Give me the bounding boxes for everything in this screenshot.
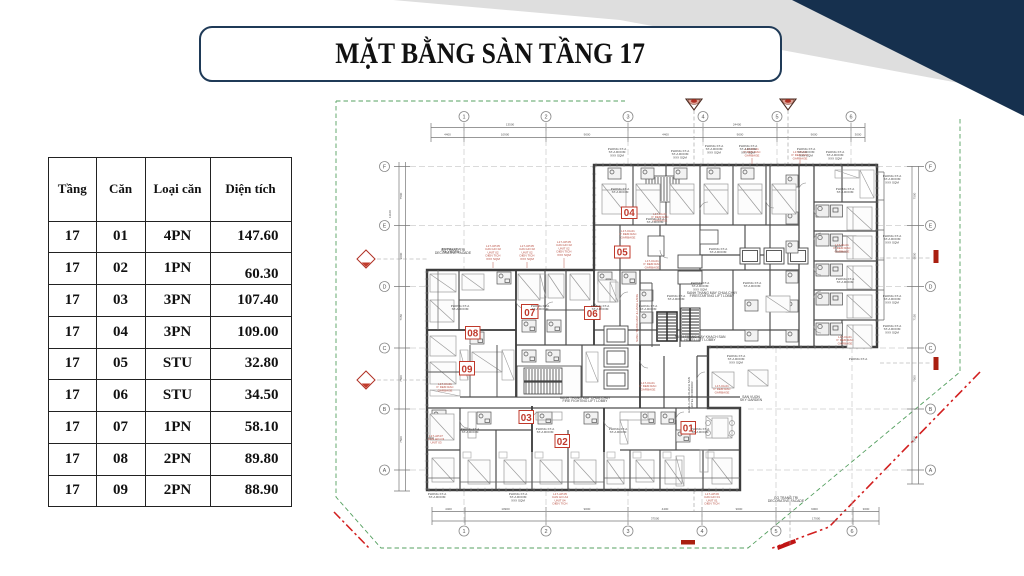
svg-text:09: 09 [462, 365, 473, 376]
svg-text:9000: 9000 [811, 507, 818, 511]
svg-text:ST-A ROOM: ST-A ROOM [647, 220, 664, 224]
svg-text:5: 5 [774, 529, 777, 535]
svg-text:XXX SQM: XXX SQM [557, 253, 571, 257]
svg-text:DECORATIVE FACADE: DECORATIVE FACADE [768, 499, 805, 503]
svg-text:7500: 7500 [399, 192, 403, 199]
svg-text:ST-A ROOM: ST-A ROOM [668, 297, 685, 301]
svg-text:ST-A ROOM: ST-A ROOM [537, 430, 554, 434]
svg-text:13500: 13500 [506, 123, 515, 127]
svg-text:7500: 7500 [913, 192, 917, 199]
svg-text:3: 3 [626, 115, 629, 121]
svg-text:3000: 3000 [863, 507, 870, 511]
svg-text:17900: 17900 [812, 517, 821, 521]
svg-text:ST-A ROOM: ST-A ROOM [837, 280, 854, 284]
svg-text:A: A [929, 468, 933, 474]
svg-text:3: 3 [626, 529, 629, 535]
svg-text:1: 1 [462, 529, 465, 535]
svg-text:04: 04 [624, 208, 635, 219]
svg-text:9000: 9000 [584, 133, 591, 137]
svg-text:GARBAGE: GARBAGE [835, 249, 850, 253]
svg-text:05: 05 [617, 248, 628, 259]
svg-text:4400: 4400 [445, 507, 452, 511]
svg-text:03: 03 [521, 413, 532, 424]
svg-text:5: 5 [775, 115, 778, 121]
svg-text:11100: 11100 [388, 210, 392, 218]
svg-text:4400: 4400 [444, 133, 451, 137]
svg-text:SKY GARDEN: SKY GARDEN [740, 398, 763, 402]
svg-text:ST-A ROOM: ST-A ROOM [429, 495, 446, 499]
svg-text:3000: 3000 [855, 133, 862, 137]
svg-text:9000: 9000 [811, 133, 818, 137]
svg-text:4400: 4400 [662, 133, 669, 137]
svg-text:9000: 9000 [584, 507, 591, 511]
svg-text:9000: 9000 [399, 252, 403, 259]
svg-text:2: 2 [544, 115, 547, 121]
svg-text:HOTEL CORRIDOR: HOTEL CORRIDOR [690, 381, 694, 409]
svg-text:GARBAGE: GARBAGE [641, 387, 656, 391]
svg-text:ST-A ROOM: ST-A ROOM [610, 430, 627, 434]
svg-text:7500: 7500 [913, 375, 917, 382]
svg-text:SANH THANG MAY & HANH LANG: SANH THANG MAY & HANH LANG [635, 293, 639, 342]
svg-text:7150: 7150 [913, 314, 917, 321]
svg-text:10900: 10900 [501, 507, 510, 511]
svg-text:DIEN TICH: DIEN TICH [553, 502, 568, 506]
svg-text:GARBAGE: GARBAGE [838, 341, 853, 345]
svg-text:XXX SQM: XXX SQM [885, 330, 899, 334]
svg-text:D: D [929, 285, 933, 291]
svg-text:XXX SQM: XXX SQM [520, 257, 534, 261]
svg-text:ST-A ROOM: ST-A ROOM [640, 307, 657, 311]
svg-text:FIRE FIGHTING LIFT LOBBY: FIRE FIGHTING LIFT LOBBY [563, 399, 609, 403]
svg-text:02: 02 [557, 437, 568, 448]
svg-text:DECORATIVE FACADE: DECORATIVE FACADE [435, 251, 472, 255]
svg-text:ST-A ROOM: ST-A ROOM [612, 190, 629, 194]
svg-text:XXX SQM: XXX SQM [729, 360, 743, 364]
svg-text:E: E [929, 224, 933, 230]
svg-text:XXX SQM: XXX SQM [486, 257, 500, 261]
svg-text:B: B [929, 407, 933, 413]
svg-text:ST-A ROOM: ST-A ROOM [710, 250, 727, 254]
svg-text:XXX SQM: XXX SQM [828, 156, 842, 160]
svg-text:F: F [383, 165, 386, 171]
svg-text:A: A [383, 468, 387, 474]
svg-text:XXX SQM: XXX SQM [885, 240, 899, 244]
svg-text:XXX SQM: XXX SQM [511, 498, 525, 502]
svg-text:7500: 7500 [399, 375, 403, 382]
svg-text:ST-A ROOM: ST-A ROOM [592, 307, 609, 311]
svg-text:D: D [383, 285, 387, 291]
svg-text:C: C [929, 346, 933, 352]
svg-text:XXX SQM: XXX SQM [673, 155, 687, 159]
svg-text:GARBAGE: GARBAGE [715, 390, 730, 394]
svg-text:4: 4 [701, 115, 704, 121]
svg-text:10900: 10900 [501, 133, 510, 137]
svg-text:XXX SQM: XXX SQM [610, 153, 624, 157]
svg-text:ST-A ROOM: ST-A ROOM [692, 430, 709, 434]
svg-text:2: 2 [544, 529, 547, 535]
svg-text:6: 6 [850, 529, 853, 535]
svg-text:XXX SQM: XXX SQM [741, 150, 755, 154]
svg-text:7500: 7500 [913, 436, 917, 443]
svg-text:ST-A ROOM: ST-A ROOM [837, 190, 854, 194]
svg-text:7500: 7500 [399, 436, 403, 443]
svg-text:C: C [383, 346, 387, 352]
svg-text:ST-A ROOM: ST-A ROOM [532, 307, 549, 311]
svg-text:1: 1 [462, 115, 465, 121]
svg-text:ST-A ROOM: ST-A ROOM [452, 307, 469, 311]
svg-text:DIEN TICH: DIEN TICH [705, 502, 720, 506]
svg-text:ST-A ROOM: ST-A ROOM [462, 430, 479, 434]
svg-text:XXX SQM: XXX SQM [707, 150, 721, 154]
svg-text:GARBAGE: GARBAGE [438, 388, 453, 392]
svg-text:HOTEL LIFT LOBBY: HOTEL LIFT LOBBY [684, 338, 716, 342]
svg-text:37500: 37500 [651, 517, 660, 521]
svg-text:7150: 7150 [399, 314, 403, 321]
svg-text:UNIT 03: UNIT 03 [430, 440, 441, 444]
svg-text:XXX SQM: XXX SQM [799, 153, 813, 157]
svg-text:24400: 24400 [733, 123, 742, 127]
svg-text:XXX SQM: XXX SQM [885, 300, 899, 304]
svg-text:XXX SQM: XXX SQM [885, 180, 899, 184]
svg-text:B: B [383, 407, 387, 413]
svg-text:GARBAGE: GARBAGE [621, 235, 636, 239]
svg-text:6: 6 [849, 115, 852, 121]
svg-text:4: 4 [700, 529, 703, 535]
svg-text:4400: 4400 [662, 507, 669, 511]
svg-text:9000: 9000 [737, 133, 744, 137]
svg-text:F: F [929, 165, 932, 171]
svg-text:GARBAGE: GARBAGE [645, 265, 660, 269]
svg-text:08: 08 [467, 329, 478, 340]
svg-text:FIRESTARTING LIFT LOBBY: FIRESTARTING LIFT LOBBY [690, 294, 735, 298]
svg-text:E: E [383, 224, 387, 230]
svg-text:ST-A ROOM: ST-A ROOM [744, 284, 761, 288]
svg-text:9000: 9000 [736, 507, 743, 511]
svg-text:PHONG KT-A: PHONG KT-A [849, 357, 868, 361]
